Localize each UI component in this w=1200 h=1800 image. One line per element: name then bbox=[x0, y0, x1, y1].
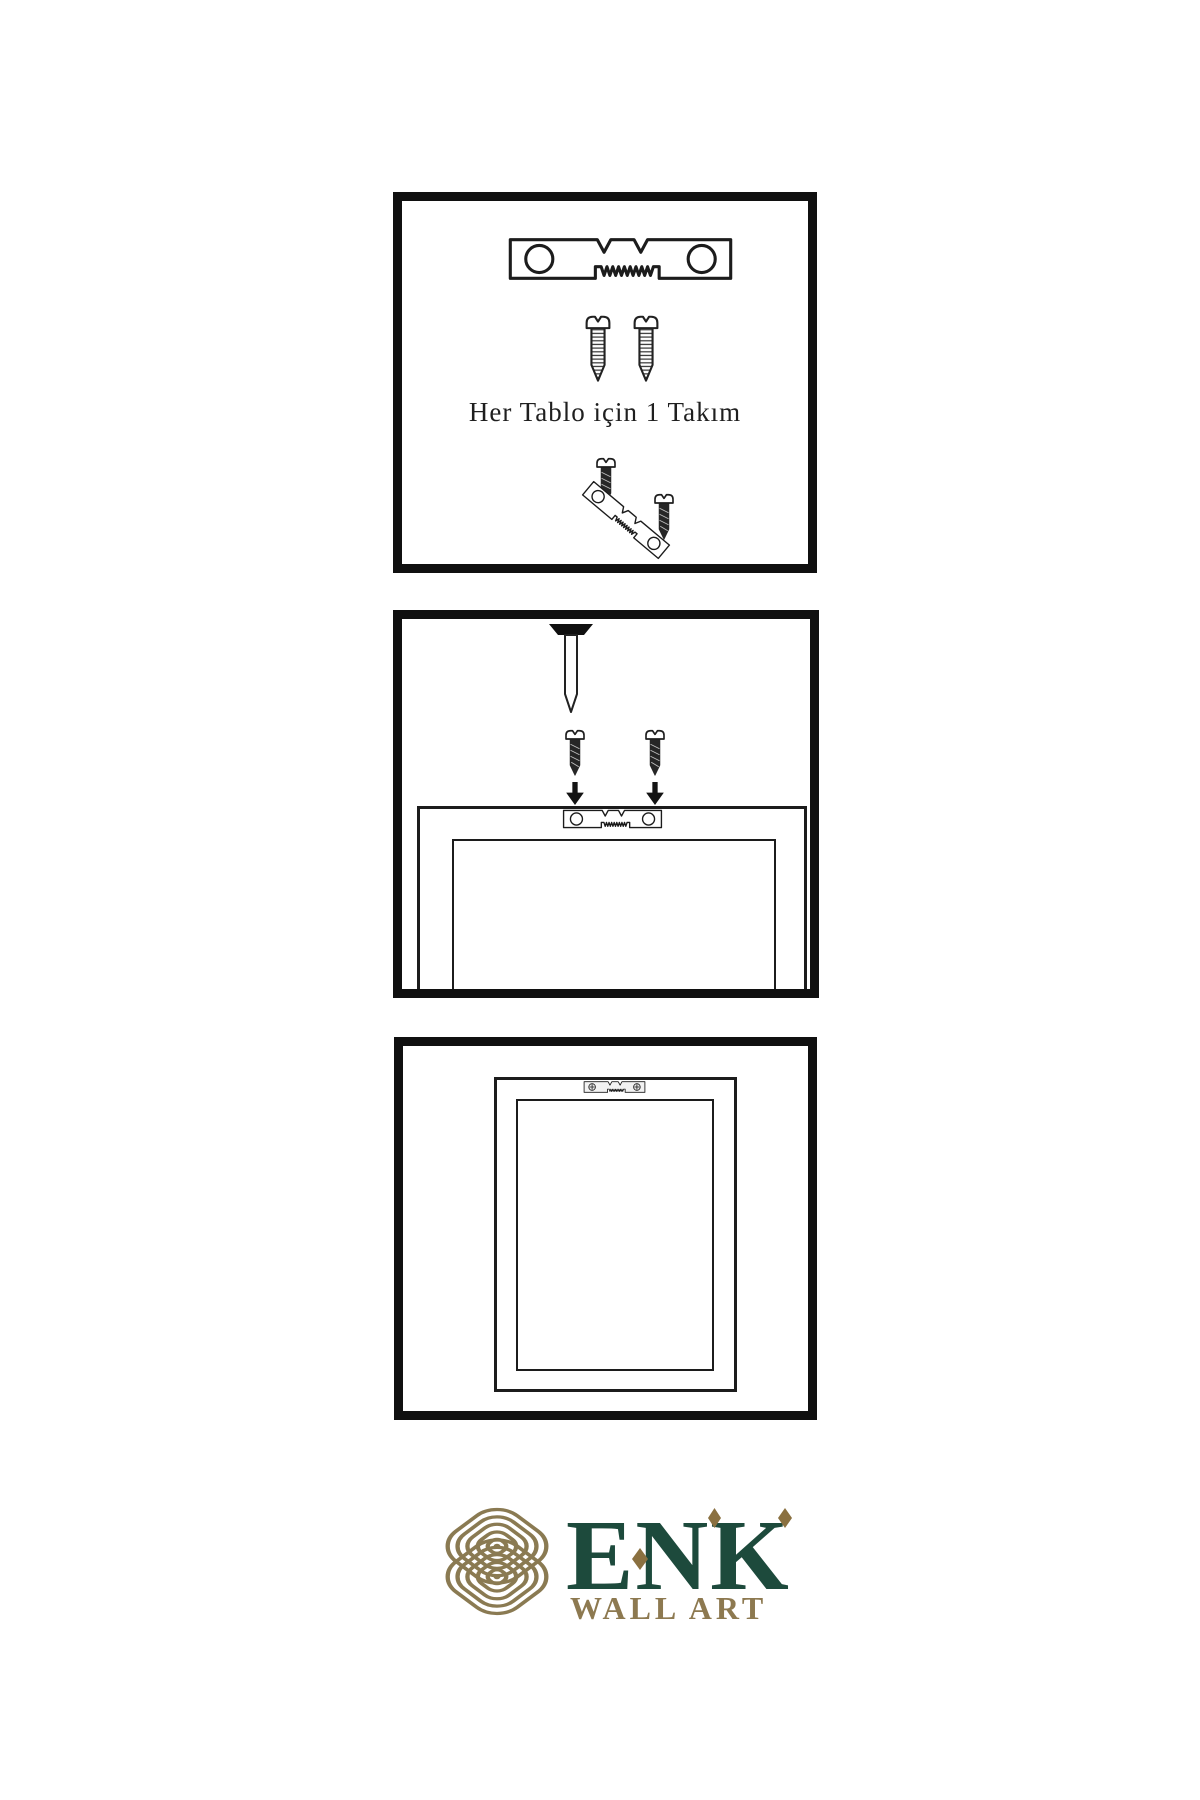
frame-back-inner-outline bbox=[452, 839, 776, 998]
dark-screw-icon bbox=[643, 727, 667, 781]
kit-caption: Her Tablo için 1 Takım bbox=[402, 397, 808, 428]
brand-subtitle: WALL ART bbox=[570, 1592, 767, 1624]
arrow-down-icon bbox=[646, 782, 664, 805]
arrow-down-icon bbox=[566, 782, 584, 805]
screw-icon bbox=[584, 311, 612, 389]
brand-logo: ENK WALL ART bbox=[420, 1488, 840, 1638]
step-panel-hardware-kit: Her Tablo için 1 Takım bbox=[393, 192, 817, 573]
sawtooth-hanger-mounted-icon bbox=[582, 1079, 647, 1095]
hanger-with-screws-icon bbox=[572, 451, 704, 573]
dark-screw-icon bbox=[652, 491, 676, 545]
step-panel-hung-frame bbox=[394, 1037, 817, 1420]
step-panel-installation bbox=[393, 610, 819, 998]
dark-screw-icon bbox=[563, 727, 587, 781]
frame-back-inner-outline bbox=[516, 1099, 714, 1371]
nail-icon bbox=[548, 624, 594, 724]
sawtooth-hanger-icon bbox=[504, 230, 737, 288]
knot-logo-icon bbox=[432, 1498, 562, 1625]
sawtooth-hanger-icon bbox=[561, 806, 664, 832]
screw-icon bbox=[632, 311, 660, 389]
